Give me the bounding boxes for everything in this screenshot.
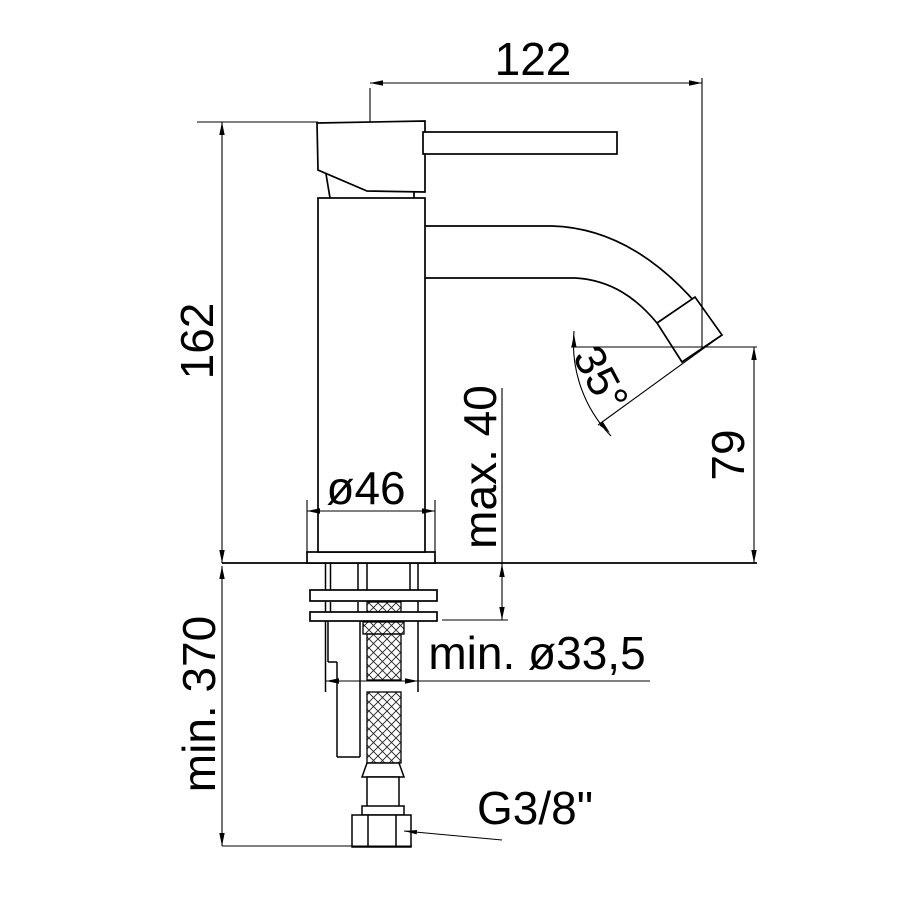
hex-nut — [352, 815, 411, 847]
base-plate — [307, 552, 435, 563]
dim-spout-reach-label: 122 — [495, 36, 572, 82]
handle-lever — [423, 132, 617, 154]
connection-thread-label: G3/8" — [477, 785, 593, 831]
dim-total-height-label: 162 — [174, 303, 220, 380]
faucet-technical-drawing: 122 162 max. 40 79 ø46 min. 370 min. ø33… — [0, 0, 900, 900]
handle-head — [317, 121, 425, 192]
dim-base-diameter-label: ø46 — [326, 465, 405, 511]
drawing-linework — [0, 0, 900, 900]
hose-connector — [352, 763, 411, 847]
braided-hose — [363, 602, 404, 763]
dim-min-hole-diameter-label: min. ø33,5 — [428, 630, 645, 676]
spout-lower-curve — [425, 278, 657, 323]
spout-tip — [657, 297, 722, 362]
dim-outlet-height-label: 79 — [705, 429, 751, 480]
dim-min-hose-length-label: min. 370 — [176, 616, 222, 792]
dim-max-deck-thickness-label: max. 40 — [457, 385, 503, 549]
